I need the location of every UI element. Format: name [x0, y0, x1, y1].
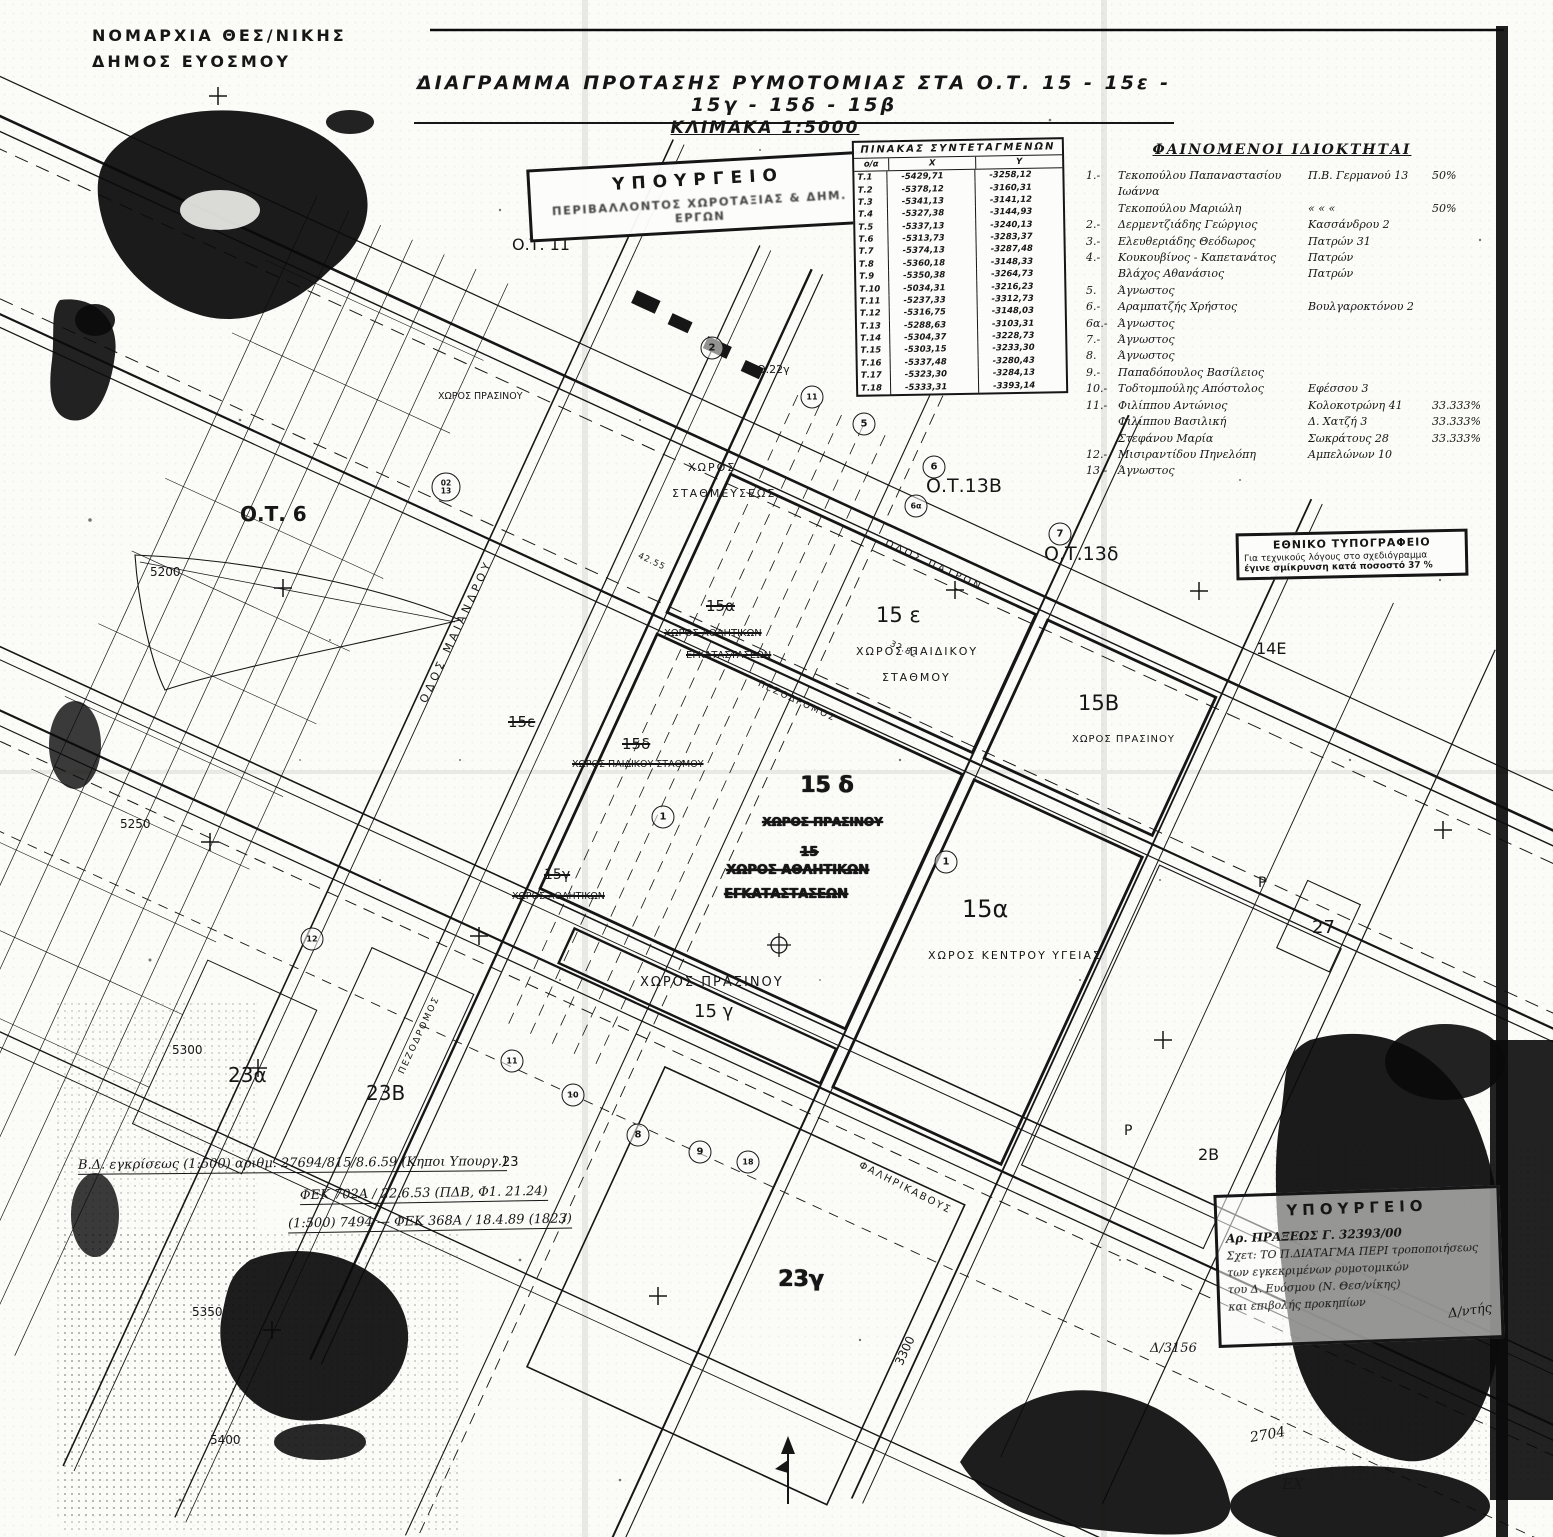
- owner-share: 50%: [1432, 168, 1478, 201]
- point-id: Τ.9: [856, 270, 889, 283]
- plot-circle-10: 10: [562, 1084, 585, 1107]
- owner-name: Άγνωστος: [1118, 348, 1308, 364]
- owner-address: Πατρών: [1308, 266, 1432, 282]
- owner-name: Τοδτομπούλης Απόστολος: [1118, 381, 1308, 397]
- list-item: Στεφάνου Μαρία Σωκράτους 28 33.333%: [1086, 431, 1478, 447]
- owner-address: Πατρών: [1308, 250, 1432, 266]
- point-id: Τ.2: [855, 184, 888, 197]
- point-id: Τ.5: [855, 221, 888, 234]
- region-header: ΝΟΜΑΡΧΙΑ ΘΕΣ/ΝΙΚΗΣ ΔΗΜΟΣ ΕΥΟΣΜΟΥ: [92, 26, 347, 78]
- owner-name: Αραμπατζής Χρήστος: [1118, 299, 1308, 315]
- owner-name: Φιλίππου Αντώνιος: [1118, 398, 1308, 414]
- owner-share: [1432, 299, 1478, 315]
- owner-share: [1432, 447, 1478, 463]
- owner-share: 33.333%: [1432, 431, 1478, 447]
- owner-share: [1432, 217, 1478, 233]
- point-id: Τ.3: [855, 196, 888, 209]
- owner-name: Παπαδόπουλος Βασίλειος: [1118, 365, 1308, 381]
- owner-share: 33.333%: [1432, 414, 1478, 430]
- plot-circle-7: 7: [1049, 523, 1072, 546]
- list-item: 11.- Φιλίππου Αντώνιος Κολοκοτρώνη 41 33…: [1086, 398, 1478, 414]
- point-id: Τ.17: [858, 369, 891, 382]
- list-item: Βλάχος Αθανάσιος Πατρών: [1086, 266, 1478, 282]
- owner-name: Τεκοπούλου Παπαναστασίου Ιωάννα: [1118, 168, 1308, 201]
- table-row: Τ.18 -5333,31 -3393,14: [858, 379, 1066, 395]
- owner-share: [1432, 348, 1478, 364]
- owner-name: Φιλίππου Βασιλική: [1118, 414, 1308, 430]
- owner-number: 6.-: [1086, 299, 1118, 315]
- owner-address: Δ. Χατζή 3: [1308, 414, 1432, 430]
- plot-circle-1b: 1: [935, 851, 958, 874]
- list-item: 5. Άγνωστος: [1086, 283, 1478, 299]
- list-item: Τεκοπούλου Μαριώλη « « « 50%: [1086, 201, 1478, 217]
- owner-number: 1.-: [1086, 168, 1118, 201]
- owner-address: [1308, 365, 1432, 381]
- point-id: Τ.10: [856, 283, 889, 296]
- owner-address: [1308, 283, 1432, 299]
- point-id: Τ.15: [857, 344, 890, 357]
- col-header-y: Υ: [976, 155, 1062, 168]
- scanned-plan-page: ΝΟΜΑΡΧΙΑ ΘΕΣ/ΝΙΚΗΣ ΔΗΜΟΣ ΕΥΟΣΜΟΥ ΔΙΑΓΡΑΜ…: [0, 0, 1553, 1537]
- list-item: 9.- Παπαδόπουλος Βασίλειος: [1086, 365, 1478, 381]
- owner-number: 13.-: [1086, 463, 1118, 479]
- col-header-id: ο/α: [854, 158, 889, 171]
- owner-address: [1308, 463, 1432, 479]
- owner-number: 12.-: [1086, 447, 1118, 463]
- plot-circle-5: 5: [853, 413, 876, 436]
- owner-share: [1432, 381, 1478, 397]
- municipality-label: ΔΗΜΟΣ ΕΥΟΣΜΟΥ: [92, 52, 347, 71]
- owner-name: Άγνωστος: [1118, 283, 1308, 299]
- list-item: 2.- Δερμεντζιάδης Γεώργιος Κασσάνδρου 2: [1086, 217, 1478, 233]
- owner-number: [1086, 414, 1118, 430]
- page-title: ΔΙΑΓΡΑΜΜΑ ΠΡΟΤΑΣΗΣ ΡΥΜΟΤΟΜΙΑΣ ΣΤΑ Ο.Τ. 1…: [414, 72, 1174, 124]
- plot-circle-18: 18: [737, 1151, 760, 1174]
- owner-number: 8.: [1086, 348, 1118, 364]
- owner-number: [1086, 431, 1118, 447]
- owner-share: [1432, 266, 1478, 282]
- owner-address: Κολοκοτρώνη 41: [1308, 398, 1432, 414]
- owner-share: 33.333%: [1432, 398, 1478, 414]
- owner-name: Στεφάνου Μαρία: [1118, 431, 1308, 447]
- owner-address: Βουλγαροκτόνου 2: [1308, 299, 1432, 315]
- col-header-x: Χ: [889, 157, 976, 171]
- owner-number: 3.-: [1086, 234, 1118, 250]
- owner-address: Σωκράτους 28: [1308, 431, 1432, 447]
- benchmark-symbol: [767, 933, 791, 957]
- owner-name: Άγνωστος: [1118, 463, 1308, 479]
- plot-circle-12: 12: [301, 928, 324, 951]
- owner-share: [1432, 365, 1478, 381]
- list-item: Φιλίππου Βασιλική Δ. Χατζή 3 33.333%: [1086, 414, 1478, 430]
- owner-number: 6α.-: [1086, 316, 1118, 332]
- owners-list: ΦΑΙΝΟΜΕΝΟΙ ΙΔΙΟΚΤΗΤΑΙ 1.- Τεκοπούλου Παπ…: [1086, 142, 1478, 480]
- point-id: Τ.7: [856, 245, 889, 258]
- approval-stamp-title: ΥΠΟΥΡΓΕΙΟ: [1225, 1194, 1489, 1221]
- owner-number: [1086, 201, 1118, 217]
- owner-address: « « «: [1308, 201, 1432, 217]
- owner-number: 4.-: [1086, 250, 1118, 266]
- approval-stamp: ΥΠΟΥΡΓΕΙΟ Αρ. ΠΡΑΞΕΩΣ Γ. 32393/00 Σχετ: …: [1213, 1185, 1504, 1348]
- list-item: 4.- Κουκουβίνος - Καπετανάτος Πατρών: [1086, 250, 1478, 266]
- plot-circle-02-13: 02 13: [432, 473, 461, 502]
- list-item: 3.- Ελευθεριάδης Θεόδωρος Πατρών 31: [1086, 234, 1478, 250]
- point-id: Τ.16: [858, 357, 891, 370]
- printing-office-stamp: ΕΘΝΙΚΟ ΤΥΠΟΓΡΑΦΕΙΟ Για τεχνικούς λόγους …: [1236, 529, 1469, 581]
- list-item: 6.- Αραμπατζής Χρήστος Βουλγαροκτόνου 2: [1086, 299, 1478, 315]
- owner-address: [1308, 348, 1432, 364]
- owner-number: 10.-: [1086, 381, 1118, 397]
- owner-name: Τεκοπούλου Μαριώλη: [1118, 201, 1308, 217]
- list-item: 12.- Μισιραντίδου Πηνελόπη Αμπελώνων 10: [1086, 447, 1478, 463]
- plot-circle-2: 2: [701, 337, 724, 360]
- list-item: 13.- Άγνωστος: [1086, 463, 1478, 479]
- point-id: Τ.13: [857, 320, 890, 333]
- point-x: -5333,31: [891, 380, 979, 394]
- side-note: Δ/3156: [1150, 1342, 1197, 1356]
- owner-share: [1432, 316, 1478, 332]
- plot-circle-9: 9: [689, 1141, 712, 1164]
- list-item: 6α.- Άγνωστος: [1086, 316, 1478, 332]
- owner-address: Π.Β. Γερμανού 13: [1308, 168, 1432, 201]
- owner-address: Πατρών 31: [1308, 234, 1432, 250]
- owner-number: 9.-: [1086, 365, 1118, 381]
- owner-number: [1086, 266, 1118, 282]
- owner-address: [1308, 316, 1432, 332]
- point-id: Τ.1: [854, 171, 887, 184]
- north-arrow: [775, 1436, 795, 1504]
- plot-circle-6a: 6α: [905, 495, 928, 518]
- owner-name: Κουκουβίνος - Καπετανάτος: [1118, 250, 1308, 266]
- owner-number: 5.: [1086, 283, 1118, 299]
- list-item: 7.- Άγνωστος: [1086, 332, 1478, 348]
- owner-address: [1308, 332, 1432, 348]
- list-item: 8. Άγνωστος: [1086, 348, 1478, 364]
- building-blocks: [624, 290, 771, 379]
- plot-circle-6: 6: [923, 456, 946, 479]
- owner-name: Μισιραντίδου Πηνελόπη: [1118, 447, 1308, 463]
- plot-circle-11b: 11: [501, 1050, 524, 1073]
- owner-address: Εφέσσου 3: [1308, 381, 1432, 397]
- owner-address: Αμπελώνων 10: [1308, 447, 1432, 463]
- list-item: 1.- Τεκοπούλου Παπαναστασίου Ιωάννα Π.Β.…: [1086, 168, 1478, 201]
- side-note-3: ΕΧ: [1282, 1476, 1304, 1493]
- owner-share: [1432, 283, 1478, 299]
- owner-share: [1432, 463, 1478, 479]
- owner-number: 2.-: [1086, 217, 1118, 233]
- plot-circle-8: 8: [627, 1124, 650, 1147]
- owner-share: [1432, 250, 1478, 266]
- owner-name: Δερμεντζιάδης Γεώργιος: [1118, 217, 1308, 233]
- point-y: -3393,14: [979, 379, 1066, 393]
- point-id: Τ.18: [858, 382, 891, 395]
- owner-address: Κασσάνδρου 2: [1308, 217, 1432, 233]
- owners-list-title: ΦΑΙΝΟΜΕΝΟΙ ΙΔΙΟΚΤΗΤΑΙ: [1086, 142, 1478, 158]
- coordinates-table: ΠΙΝΑΚΑΣ ΣΥΝΤΕΤΑΓΜΕΝΩΝ ο/α Χ Υ Τ.1 -5429,…: [852, 137, 1068, 396]
- owner-name: Ελευθεριάδης Θεόδωρος: [1118, 234, 1308, 250]
- prefecture-label: ΝΟΜΑΡΧΙΑ ΘΕΣ/ΝΙΚΗΣ: [92, 26, 347, 45]
- plot-circle-11a: 11: [801, 386, 824, 409]
- list-item: 10.- Τοδτομπούλης Απόστολος Εφέσσου 3: [1086, 381, 1478, 397]
- point-id: Τ.8: [856, 258, 889, 271]
- owner-number: 7.-: [1086, 332, 1118, 348]
- owner-share: 50%: [1432, 201, 1478, 217]
- owner-name: Άγνωστος: [1118, 316, 1308, 332]
- owner-name: Βλάχος Αθανάσιος: [1118, 266, 1308, 282]
- owner-number: 11.-: [1086, 398, 1118, 414]
- point-id: Τ.12: [857, 307, 890, 320]
- point-id: Τ.11: [856, 295, 889, 308]
- point-id: Τ.6: [855, 233, 888, 246]
- owners-list-body: 1.- Τεκοπούλου Παπαναστασίου Ιωάννα Π.Β.…: [1086, 168, 1478, 480]
- coordinates-table-body: Τ.1 -5429,71 -3258,12 Τ.2 -5378,12 -3160…: [854, 168, 1066, 394]
- point-id: Τ.14: [857, 332, 890, 345]
- scale-label: ΚΛΙΜΑΚΑ 1:5000: [650, 118, 880, 138]
- owner-name: Άγνωστος: [1118, 332, 1308, 348]
- point-id: Τ.4: [855, 208, 888, 221]
- wedge-outline: [135, 555, 460, 690]
- owner-share: [1432, 234, 1478, 250]
- owner-share: [1432, 332, 1478, 348]
- plot-circle-1a: 1: [652, 806, 675, 829]
